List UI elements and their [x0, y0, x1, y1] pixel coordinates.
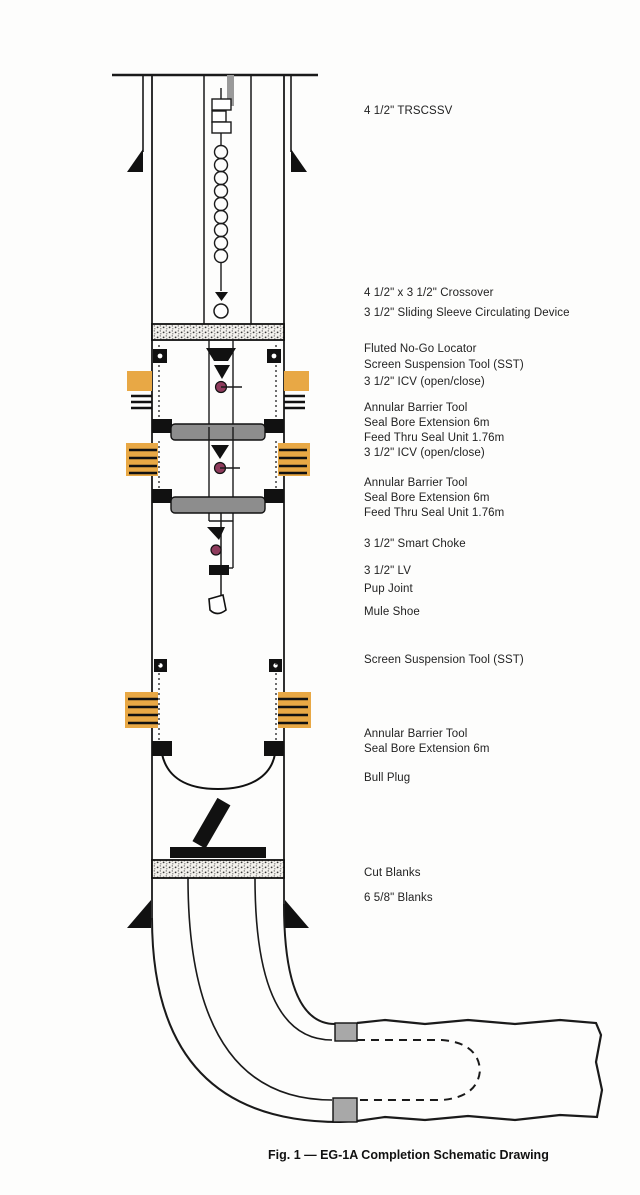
screen-left-1 — [127, 371, 152, 391]
label-sbe-3: Seal Bore Extension 6m — [364, 742, 490, 756]
label-feed-thru-2: Feed Thru Seal Unit 1.76m — [364, 506, 504, 520]
label-bull-plug: Bull Plug — [364, 771, 410, 785]
label-abt-1: Annular Barrier Tool — [364, 401, 467, 415]
figure-caption: Fig. 1 — EG-1A Completion Schematic Draw… — [268, 1148, 549, 1162]
seal-bore-extension-1 — [171, 424, 265, 440]
screen-right-1 — [284, 371, 309, 391]
label-icv-1: 3 1/2" ICV (open/close) — [364, 375, 485, 389]
label-feed-thru-1: Feed Thru Seal Unit 1.76m — [364, 431, 504, 445]
no-go-locator-icon — [206, 348, 236, 361]
completion-schematic-figure: 4 1/2" TRSCSSV 4 1/2" x 3 1/2" Crossover… — [0, 0, 640, 1195]
locator-ring-icon — [214, 304, 228, 318]
label-icv-2: 3 1/2" ICV (open/close) — [364, 446, 485, 460]
liner-curve-upper — [255, 878, 332, 1040]
label-sst-lower: Screen Suspension Tool (SST) — [364, 653, 524, 667]
feed-thru-lines-1 — [131, 396, 305, 408]
label-mule-shoe: Mule Shoe — [364, 605, 420, 619]
label-crossover: 4 1/2" x 3 1/2" Crossover — [364, 286, 494, 300]
bull-plug-icon — [162, 754, 275, 789]
seal-bore-extension-2 — [171, 497, 265, 513]
label-pup-joint: Pup Joint — [364, 582, 413, 596]
label-abt-2: Annular Barrier Tool — [364, 476, 467, 490]
blank-bar-icon — [170, 847, 266, 858]
crossover-sliding-sleeve-band — [152, 324, 284, 340]
label-sbe-2: Seal Bore Extension 6m — [364, 491, 490, 505]
label-abt-3: Annular Barrier Tool — [364, 727, 467, 741]
trscssv-valve-icon — [212, 99, 231, 110]
casing-shoe-right-icon — [285, 900, 309, 928]
blanks-dashed-tube — [357, 1040, 480, 1100]
casing-curve-outer — [152, 918, 357, 1122]
wireline-arrow-icon — [215, 292, 228, 301]
label-sst-upper: Screen Suspension Tool (SST) — [364, 358, 524, 372]
sst-icv-section-1 — [127, 340, 309, 440]
label-no-go-locator: Fluted No-Go Locator — [364, 342, 477, 356]
control-line-coil-icon — [215, 146, 228, 263]
casing-hanger-left-icon — [127, 149, 143, 172]
annular-barrier-left-1 — [126, 443, 158, 476]
choke-port-icon — [211, 545, 221, 555]
sst-icv-section-2 — [126, 427, 310, 521]
mule-shoe-icon — [209, 595, 226, 614]
open-hole-wall — [357, 1020, 602, 1121]
label-cut-blanks: Cut Blanks — [364, 866, 421, 880]
liner-curve-lower — [188, 878, 332, 1100]
lateral-section — [152, 878, 602, 1122]
casing-shoe-left-icon — [127, 900, 151, 928]
cut-blank-flapper-icon — [192, 798, 230, 849]
lv-pup-joint-icon — [209, 565, 229, 575]
label-sliding-sleeve: 3 1/2" Sliding Sleeve Circulating Device — [364, 306, 570, 320]
label-blanks: 6 5/8" Blanks — [364, 891, 433, 905]
label-smart-choke: 3 1/2" Smart Choke — [364, 537, 466, 551]
trscssv-assembly — [212, 88, 231, 318]
label-lv: 3 1/2" LV — [364, 564, 411, 578]
liner-hanger-bottom-block — [333, 1098, 357, 1122]
annular-barrier-right-1 — [278, 443, 310, 476]
lower-string — [207, 513, 233, 614]
wellbore-schematic — [0, 0, 640, 1195]
liner-top-band — [152, 860, 284, 878]
valve-seat-2-icon — [211, 445, 229, 459]
smart-choke-icon — [207, 527, 225, 540]
casing-hanger-right-icon — [291, 149, 307, 172]
liner-hanger-top-block — [335, 1023, 357, 1041]
label-sbe-1: Seal Bore Extension 6m — [364, 416, 490, 430]
label-trscssv: 4 1/2" TRSCSSV — [364, 104, 452, 118]
valve-seat-icon — [214, 365, 230, 379]
